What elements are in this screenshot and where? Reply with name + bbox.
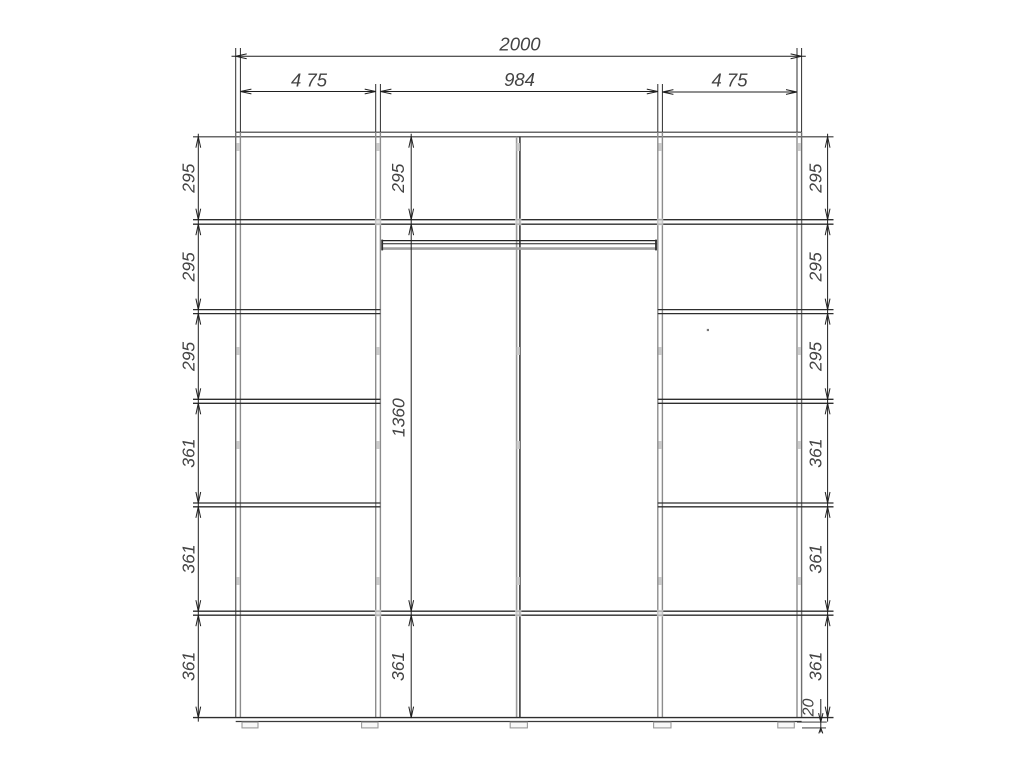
svg-text:2000: 2000: [498, 34, 541, 55]
svg-text:295: 295: [806, 342, 826, 372]
svg-text:295: 295: [806, 163, 826, 193]
svg-text:361: 361: [806, 439, 826, 468]
svg-text:295: 295: [178, 342, 198, 372]
svg-text:20: 20: [801, 699, 818, 718]
svg-text:361: 361: [178, 544, 198, 573]
svg-text:361: 361: [806, 544, 826, 573]
svg-text:361: 361: [388, 652, 408, 681]
svg-text:1360: 1360: [389, 398, 409, 437]
svg-text:295: 295: [806, 252, 826, 282]
svg-text:295: 295: [178, 163, 198, 193]
svg-text:984: 984: [504, 69, 535, 90]
svg-text:361: 361: [806, 652, 826, 681]
svg-text:295: 295: [178, 252, 198, 282]
svg-text:361: 361: [178, 652, 198, 681]
svg-text:4 75: 4 75: [291, 70, 328, 91]
svg-text:295: 295: [388, 163, 408, 193]
svg-text:361: 361: [178, 439, 198, 468]
svg-text:4 75: 4 75: [711, 70, 748, 91]
